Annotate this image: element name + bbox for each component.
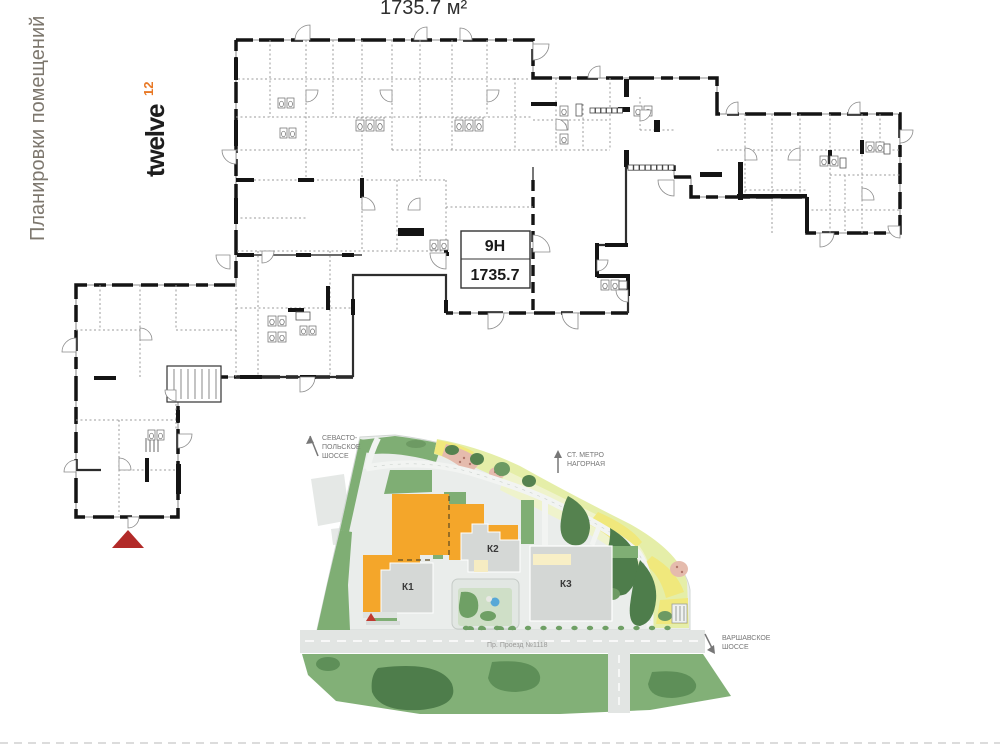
- svg-text:12: 12: [141, 82, 156, 96]
- svg-text:ВАРШАВСКОЕ: ВАРШАВСКОЕ: [722, 635, 771, 642]
- svg-text:1735.7: 1735.7: [471, 267, 520, 284]
- svg-text:ШОССЕ: ШОССЕ: [322, 453, 349, 460]
- svg-text:Планировки помещений: Планировки помещений: [27, 16, 49, 241]
- svg-text:К3: К3: [560, 579, 572, 590]
- svg-text:НАГОРНАЯ: НАГОРНАЯ: [567, 461, 605, 468]
- svg-text:СЕВАСТО-: СЕВАСТО-: [322, 435, 358, 442]
- svg-text:9Н: 9Н: [485, 238, 505, 255]
- svg-text:К2: К2: [487, 544, 499, 555]
- svg-text:Пр. Проезд №1118: Пр. Проезд №1118: [487, 642, 548, 649]
- svg-text:ПОЛЬСКОЕ: ПОЛЬСКОЕ: [322, 444, 361, 451]
- svg-text:К1: К1: [402, 582, 414, 593]
- svg-text:twelve: twelve: [140, 104, 170, 177]
- svg-text:СТ. МЕТРО: СТ. МЕТРО: [567, 452, 605, 459]
- svg-text:1735.7 м²: 1735.7 м²: [380, 0, 467, 19]
- svg-text:ШОССЕ: ШОССЕ: [722, 644, 749, 651]
